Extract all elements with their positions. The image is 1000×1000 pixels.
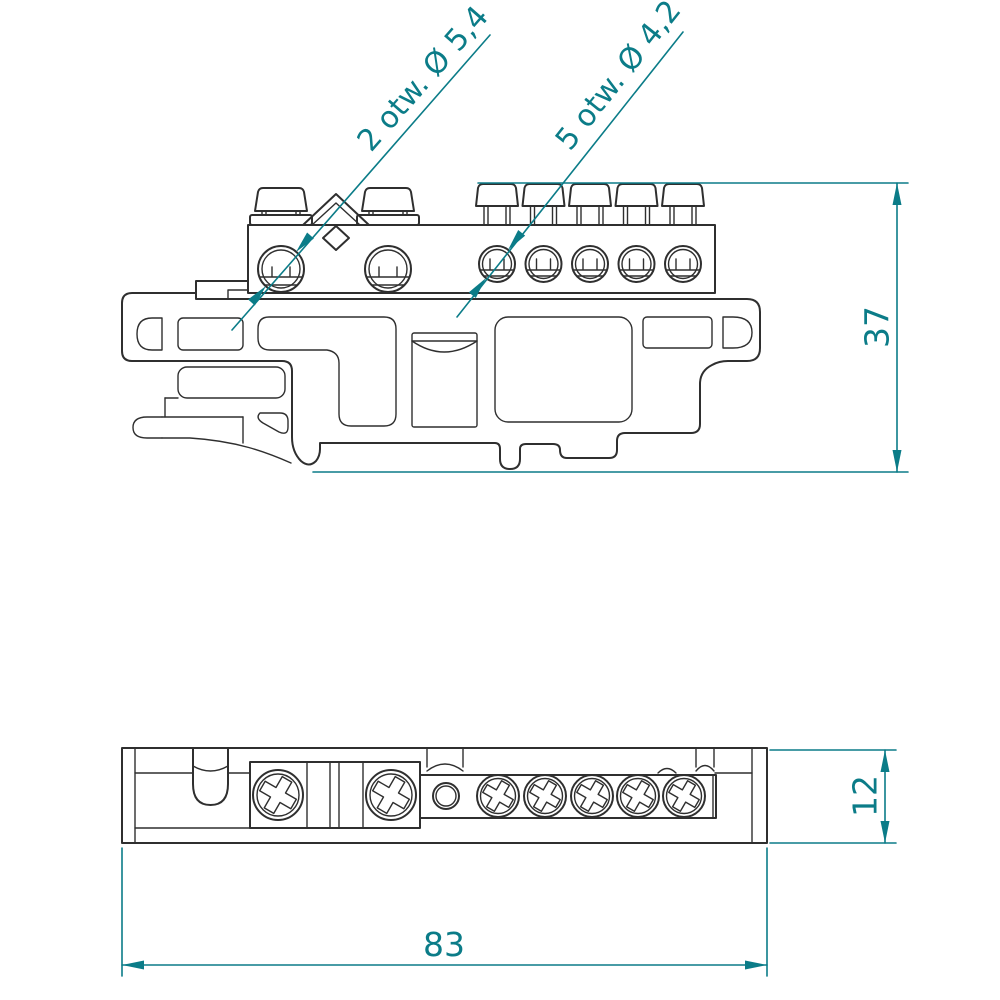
dim83-label: 83 — [423, 925, 465, 964]
technical-drawing-page: 37 12 83 2 otw. Ø 5,4 5 otw. Ø 4,2 — [0, 0, 1000, 1000]
dim37-label: 37 — [858, 306, 897, 348]
dim12-label: 12 — [846, 775, 885, 817]
terminal-block-drawing: 37 12 83 2 otw. Ø 5,4 5 otw. Ø 4,2 — [0, 0, 1000, 1000]
drawing-background — [0, 0, 1000, 1000]
